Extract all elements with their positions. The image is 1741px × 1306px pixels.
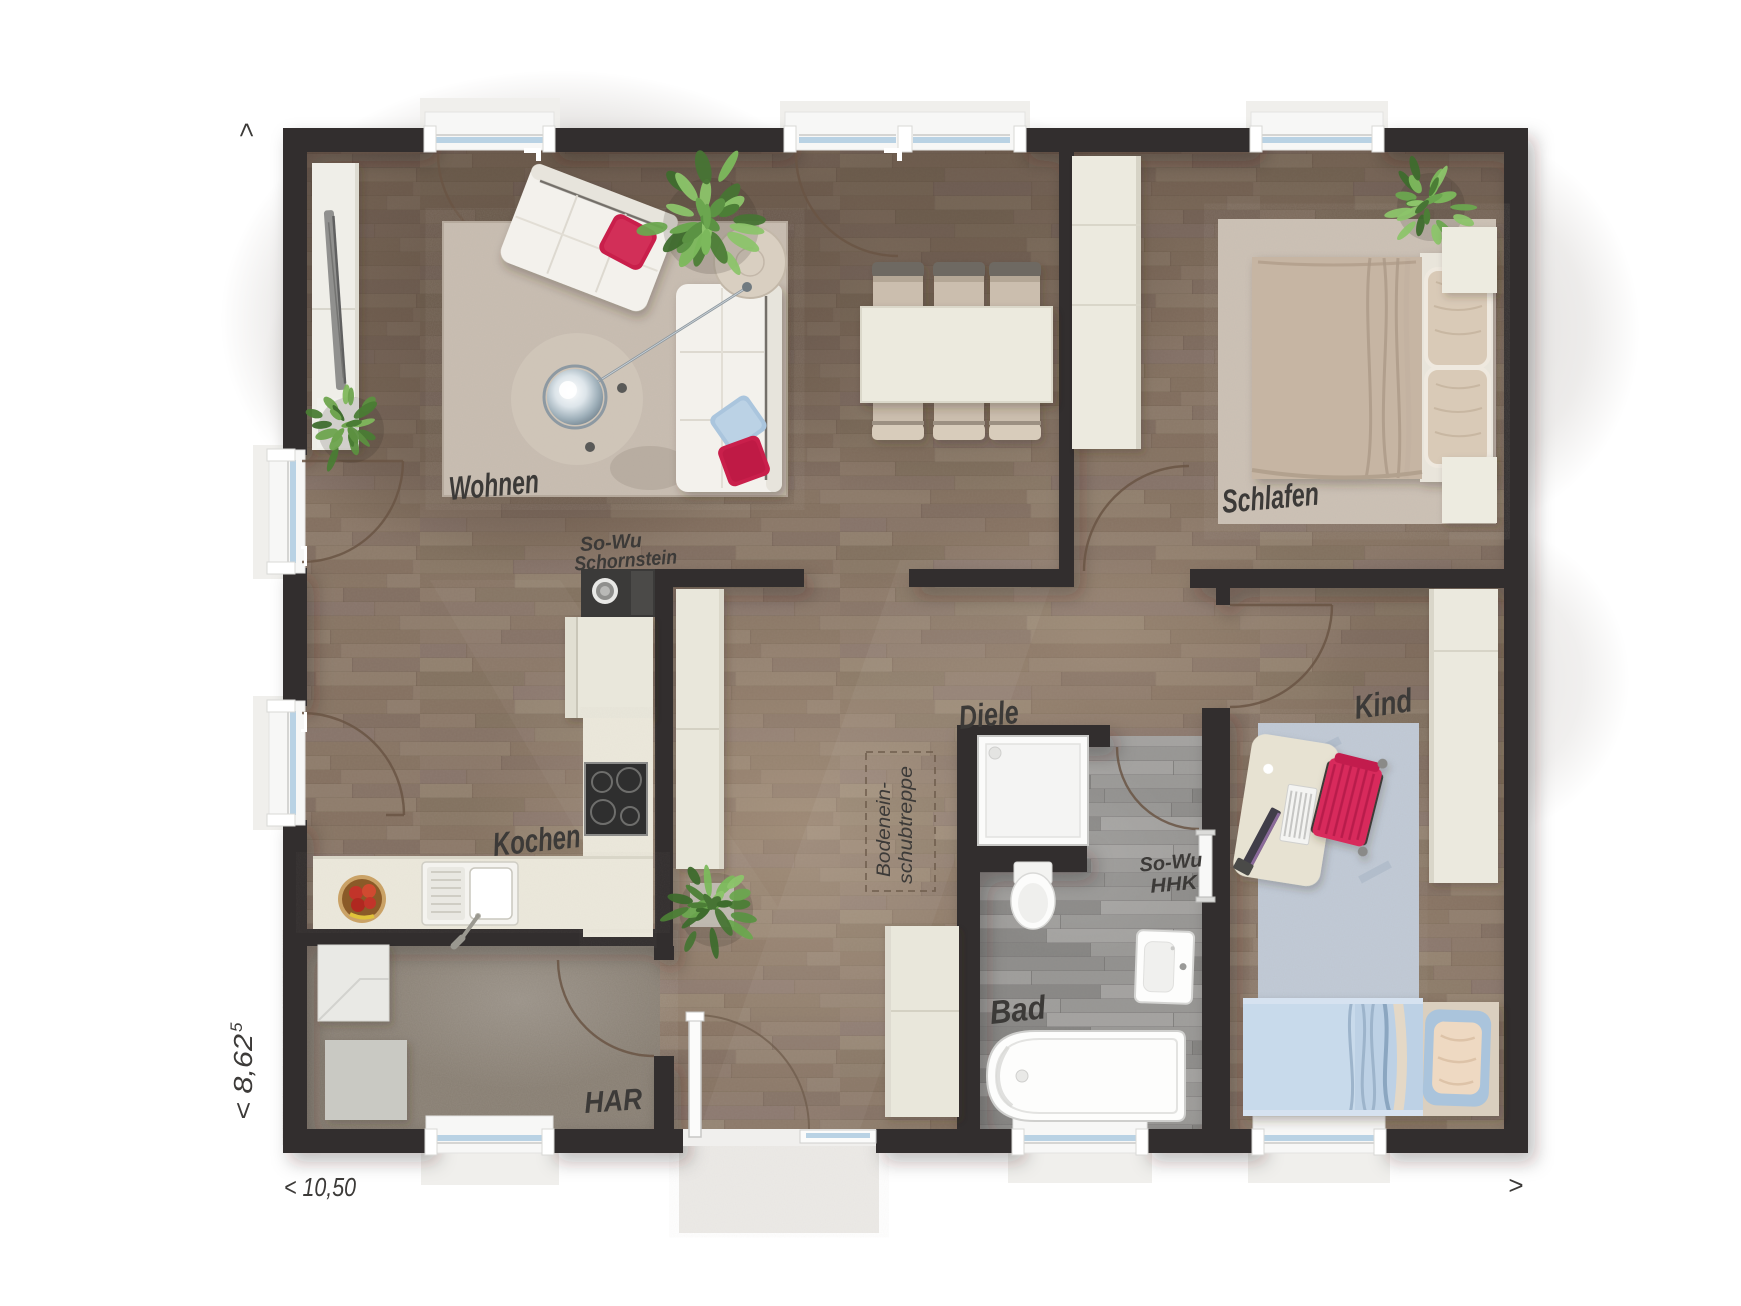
svg-text:HAR: HAR: [583, 1083, 643, 1120]
svg-text:Bad: Bad: [988, 988, 1048, 1031]
svg-text:< 8,62: < 8,62: [228, 1033, 258, 1120]
svg-text:>: >: [1508, 1170, 1523, 1200]
svg-text:schubtreppe: schubtreppe: [896, 766, 917, 884]
svg-text:HHK: HHK: [1149, 872, 1199, 898]
svg-text:Bodenein-: Bodenein-: [874, 782, 895, 877]
svg-text:Diele: Diele: [957, 693, 1021, 736]
svg-text:5: 5: [227, 1022, 246, 1032]
svg-text:<: <: [232, 122, 262, 137]
svg-text:< 10,50: < 10,50: [284, 1172, 356, 1202]
svg-text:Wohnen: Wohnen: [447, 462, 540, 507]
